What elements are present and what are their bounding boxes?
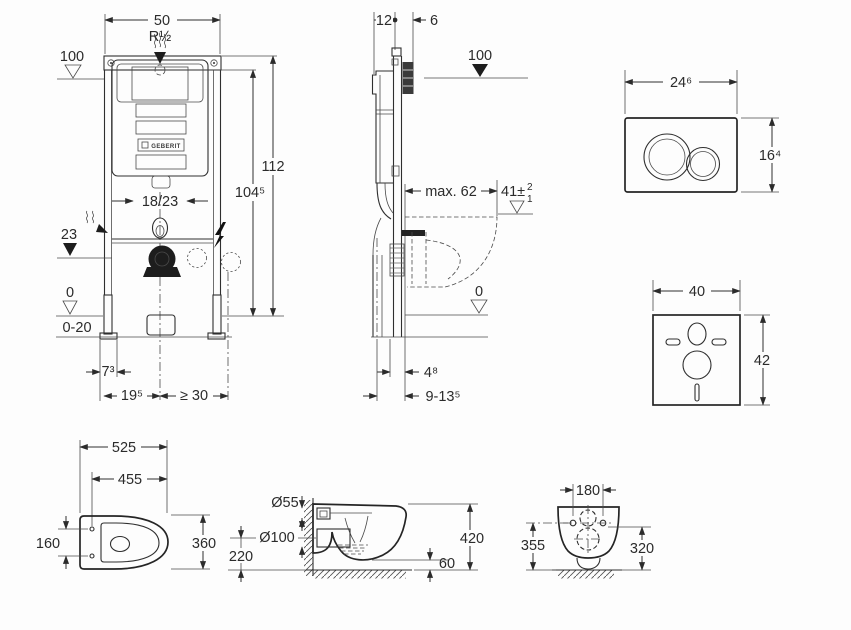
dim-frame-depth: 12 [376,13,392,29]
dim-wc-width: 360 [192,536,216,552]
level-bowl-height: 41± 2 1 [498,182,533,214]
wc-front-view: 180 355 320 [518,482,658,579]
floor-hatch [312,571,406,579]
frame-side-view: 12 6 [363,12,533,405]
dim-floor-range: 0-20 [62,320,91,336]
wall-anchor-plate [403,62,414,94]
wc-top-view: 525 455 160 360 [36,439,219,569]
wc-fixing-hole-top [90,527,94,531]
dim-mat-width: 40 [689,284,705,300]
sound-mat-view: 40 42 [653,280,777,405]
dim-clearance: ≥ 30 [180,388,208,404]
alt-drain-position-right [222,253,241,272]
dim-foot-offset: 7³ [102,364,115,380]
drain-socket [143,246,181,278]
dim-plate-height: 16⁴ [759,148,781,164]
flush-button-small [687,148,720,181]
dim-inlet-dia: Ø55 [271,495,298,511]
dim-wc-hole-spacing: 160 [36,536,60,552]
level-zero-middle: 0 [371,284,488,337]
wc-bowl-dashed-outline [405,217,497,287]
dim-bowl-tol-plus: 2 [527,182,533,193]
dim-mat-height: 42 [754,353,770,369]
technical-drawing-sheet: GEBERIT [0,0,851,630]
dim-wc-inner-length: 455 [118,472,142,488]
dim-frame-width: 50 [154,13,170,29]
wc-drain-opening [111,537,130,552]
dim-pipe-offset: 9-13⁵ [425,389,460,405]
dim-drain-offset: 19⁵ [121,388,143,404]
flush-plate-view: 24⁶ 16⁴ [625,70,788,192]
dim-supply-height: 104⁵ [235,185,265,201]
flush-button-large [644,134,690,180]
level-supply-middle: 100 [424,48,528,78]
dim-bottom-gap: 60 [439,556,455,572]
dim-front-height-right: 320 [630,541,654,557]
fixing-bolt [402,230,425,236]
dim-plate-depth: 6 [430,13,438,29]
level-supply-left: 100 [57,49,104,79]
geberit-logo-mark [142,142,148,148]
wc-fixing-hole-bottom [90,554,94,558]
frame-front-view: GEBERIT [56,11,289,404]
alt-drain-position-left [188,249,207,268]
dim-supply-level-side: 100 [468,48,492,64]
dim-thread: R½ [149,29,172,45]
cistern-side [373,71,394,183]
dim-zero-level: 0 [66,285,74,301]
wc-foot-tab [577,558,600,569]
wc-pan-outline-top [80,516,168,569]
dim-frame-height: 112 [261,159,284,175]
dim-zero-level-side: 0 [475,284,483,300]
dim-plate-width: 24⁶ [670,75,692,91]
wc-side-view: Ø55 Ø100 220 420 60 [226,495,488,582]
dim-supply-level: 100 [60,49,84,65]
cistern-front: GEBERIT [112,60,208,188]
installation-drawing: GEBERIT [0,0,851,630]
dim-front-height-left: 355 [521,538,545,554]
geberit-logo-text: GEBERIT [151,144,180,150]
dim-outlet-height: 220 [229,549,253,565]
dim-wc-length: 525 [112,440,136,456]
dim-outlet-offset: 18/23 [142,194,178,210]
sound-mat-body [653,315,740,405]
flush-plate-body [625,118,737,192]
dim-outlet-dia: Ø100 [259,530,294,546]
dim-max-offset: max. 62 [425,184,477,200]
floor-hatch-front [558,571,614,579]
dim-drain-level: 23 [61,227,77,243]
dim-bowl-height: 41± [501,184,525,200]
level-zero-left: 0 0-20 [56,285,284,337]
dim-wall-offset: 4⁸ [424,365,438,381]
dim-front-hole-spacing: 180 [576,483,600,499]
dim-wc-height-side: 420 [460,531,484,547]
dim-bowl-tol-minus: 1 [527,194,533,205]
